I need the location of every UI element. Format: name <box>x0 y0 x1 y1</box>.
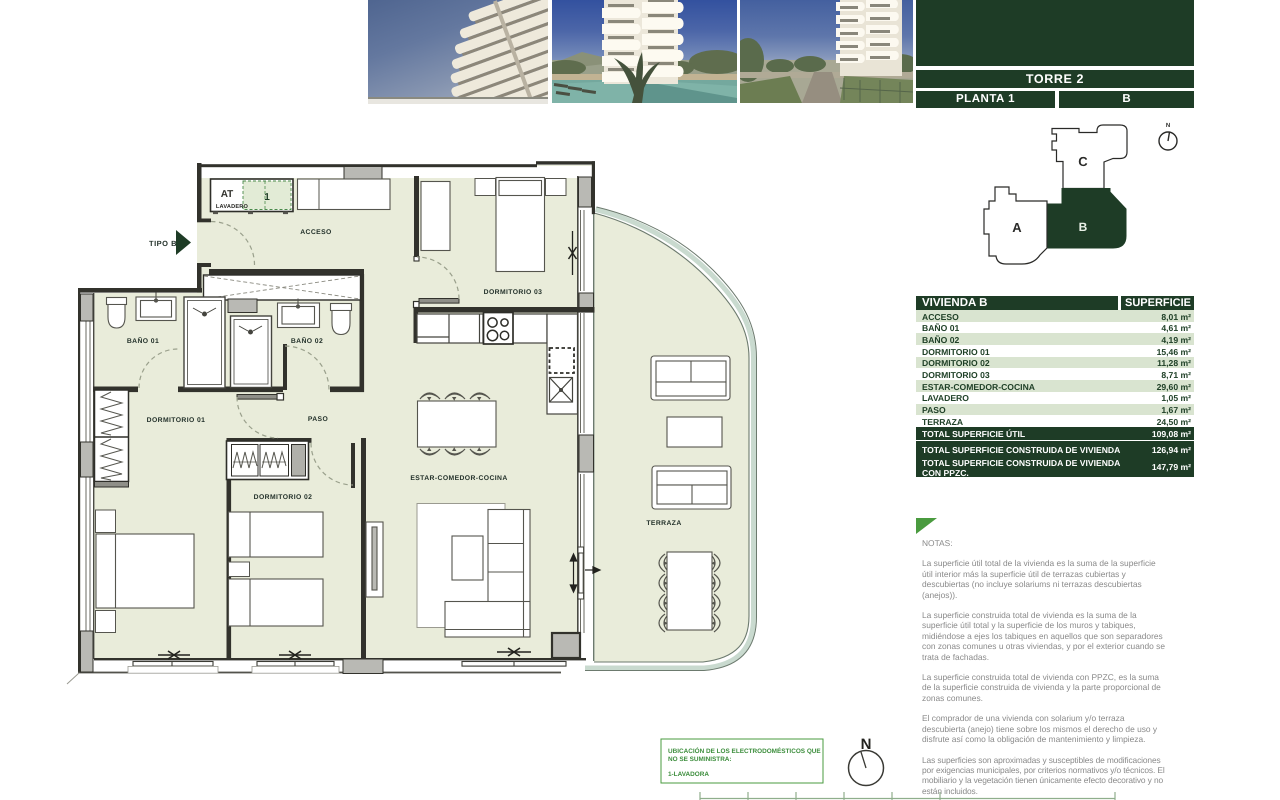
svg-text:BAÑO 01: BAÑO 01 <box>127 336 159 345</box>
svg-text:UBICACIÓN DE LOS ELECTRODOMÉST: UBICACIÓN DE LOS ELECTRODOMÉSTICOS QUE <box>668 747 821 755</box>
svg-text:DORMITORIO 02: DORMITORIO 02 <box>254 494 313 501</box>
svg-text:AT: AT <box>221 189 234 200</box>
svg-text:ESTAR-COMEDOR-COCINA: ESTAR-COMEDOR-COCINA <box>410 475 507 482</box>
svg-text:TIPO B: TIPO B <box>149 239 177 248</box>
svg-text:ACCESO: ACCESO <box>300 229 331 236</box>
svg-text:DORMITORIO 03: DORMITORIO 03 <box>484 289 543 296</box>
svg-text:NO SE SUMINISTRA:: NO SE SUMINISTRA: <box>668 756 732 763</box>
svg-text:TERRAZA: TERRAZA <box>646 520 681 527</box>
svg-text:DORMITORIO 01: DORMITORIO 01 <box>147 417 206 424</box>
svg-text:PASO: PASO <box>308 416 328 423</box>
svg-text:BAÑO 02: BAÑO 02 <box>291 336 323 345</box>
svg-text:LAVADERO: LAVADERO <box>216 204 249 210</box>
svg-text:1-LAVADORA: 1-LAVADORA <box>668 771 709 778</box>
svg-text:1: 1 <box>264 192 270 203</box>
